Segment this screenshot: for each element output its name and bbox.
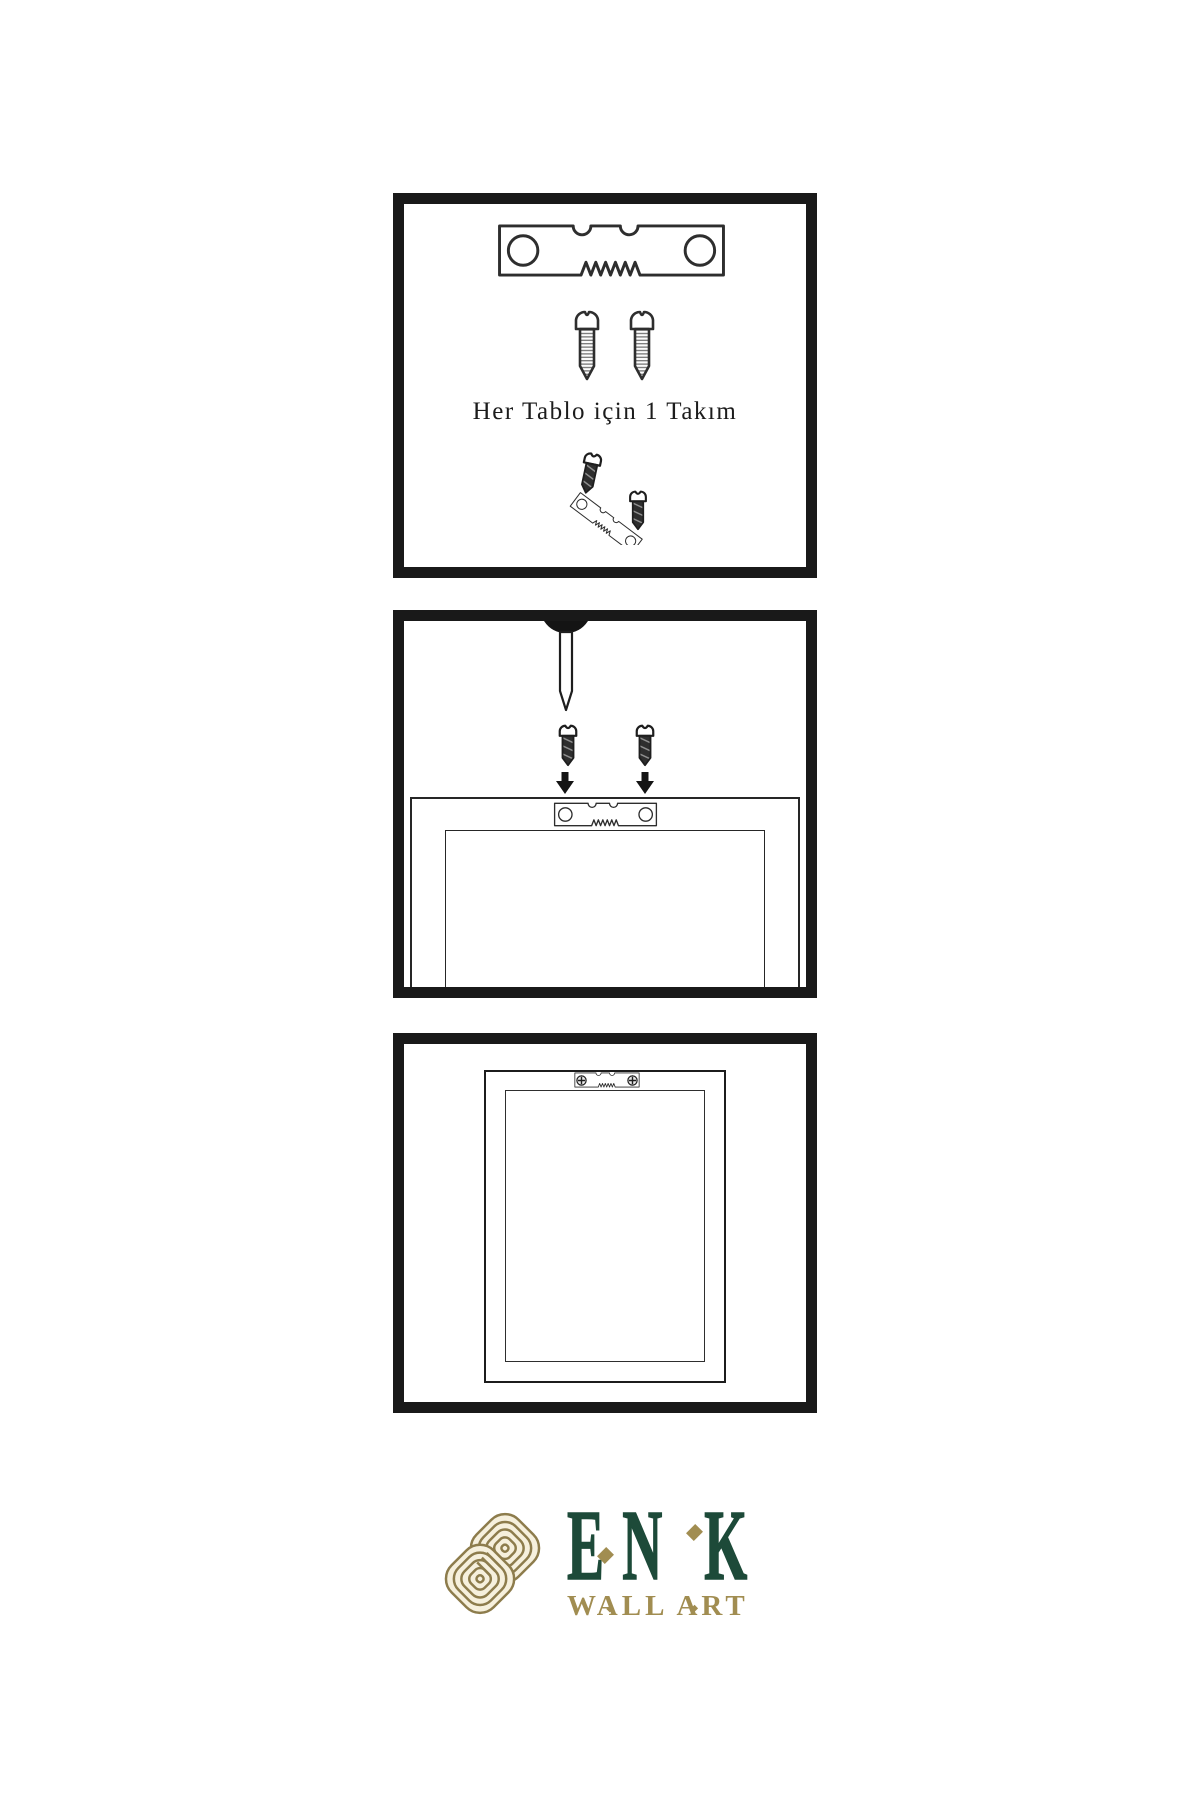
arrow-down-icon [556,772,574,794]
brand-tagline: WALL ART [567,1591,749,1623]
brand-name: ENK [567,1495,747,1596]
frame-front-inner-outline [505,1090,705,1362]
panel-step-2-mounting [393,610,817,998]
screw-icon [634,722,656,768]
knot-logo-icon [435,1502,550,1625]
screw-icon [572,308,602,382]
arrow-down-icon [636,772,654,794]
sawtooth-hanger-icon [495,223,728,278]
phillips-screw-head-icon [627,1075,638,1086]
brand-letter-e: E [567,1495,604,1596]
sawtooth-hanger-icon [553,802,658,827]
instruction-sheet: Her Tablo için 1 Takım [0,0,1200,1800]
brand-letter-k: K [704,1495,747,1596]
panel-step-1-hardware-kit: Her Tablo için 1 Takım [393,193,817,578]
frame-back-inner-outline [445,830,765,987]
brand-letter-n: N [622,1495,662,1596]
nail-icon [544,621,588,717]
panel-step-3-result [393,1033,817,1413]
hanger-assembly-icon [565,445,660,545]
screw-icon [627,308,657,382]
kit-caption: Her Tablo için 1 Takım [404,398,806,426]
phillips-screw-head-icon [576,1075,587,1086]
screw-icon [557,722,579,768]
